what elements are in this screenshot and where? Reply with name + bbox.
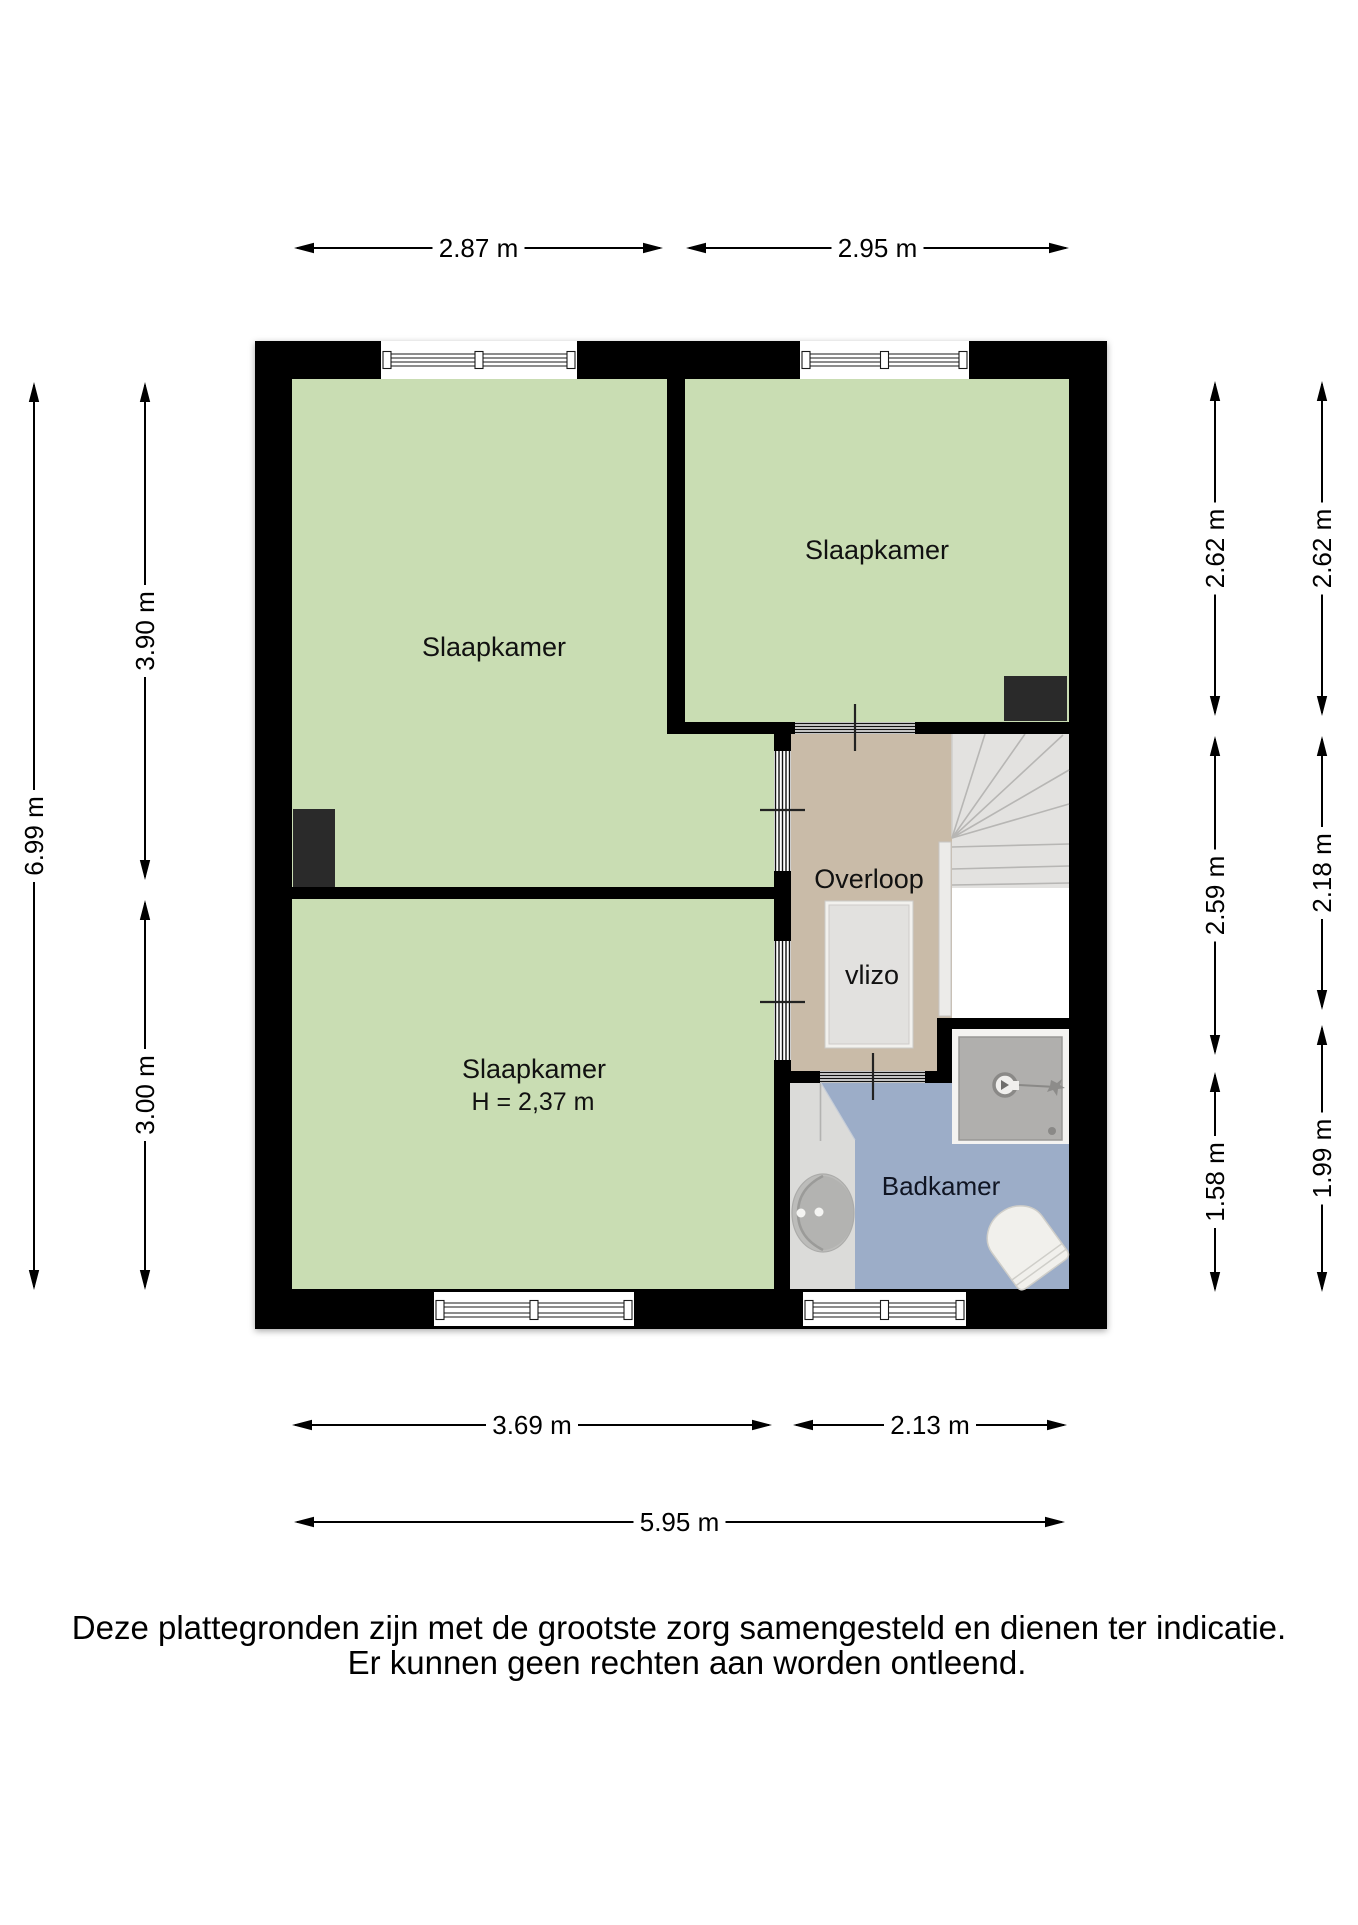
svg-text:Er kunnen geen rechten aan wor: Er kunnen geen rechten aan worden ontlee…: [348, 1644, 1027, 1681]
svg-text:2.62 m: 2.62 m: [1307, 509, 1337, 589]
svg-text:2.87 m: 2.87 m: [439, 233, 519, 263]
svg-text:Deze plattegronden zijn met de: Deze plattegronden zijn met de grootste …: [72, 1609, 1286, 1646]
svg-text:6.99 m: 6.99 m: [19, 796, 49, 876]
svg-text:H = 2,37 m: H = 2,37 m: [472, 1088, 595, 1116]
svg-text:3.90 m: 3.90 m: [130, 591, 160, 671]
svg-text:5.95 m: 5.95 m: [640, 1507, 720, 1537]
svg-text:3.00 m: 3.00 m: [130, 1055, 160, 1135]
svg-text:Slaapkamer: Slaapkamer: [422, 632, 566, 662]
svg-text:1.99 m: 1.99 m: [1307, 1119, 1337, 1199]
svg-text:2.62 m: 2.62 m: [1200, 509, 1230, 589]
svg-text:2.59 m: 2.59 m: [1200, 856, 1230, 936]
svg-text:2.95 m: 2.95 m: [838, 233, 918, 263]
svg-text:Slaapkamer: Slaapkamer: [805, 535, 949, 565]
svg-text:2.13 m: 2.13 m: [890, 1410, 970, 1440]
svg-text:Overloop: Overloop: [814, 864, 924, 894]
svg-text:Slaapkamer: Slaapkamer: [462, 1054, 606, 1084]
svg-text:vlizo: vlizo: [845, 960, 899, 990]
svg-text:2.18 m: 2.18 m: [1307, 833, 1337, 913]
svg-text:3.69 m: 3.69 m: [492, 1410, 572, 1440]
svg-text:1.58 m: 1.58 m: [1200, 1142, 1230, 1222]
svg-text:Badkamer: Badkamer: [882, 1171, 1001, 1201]
